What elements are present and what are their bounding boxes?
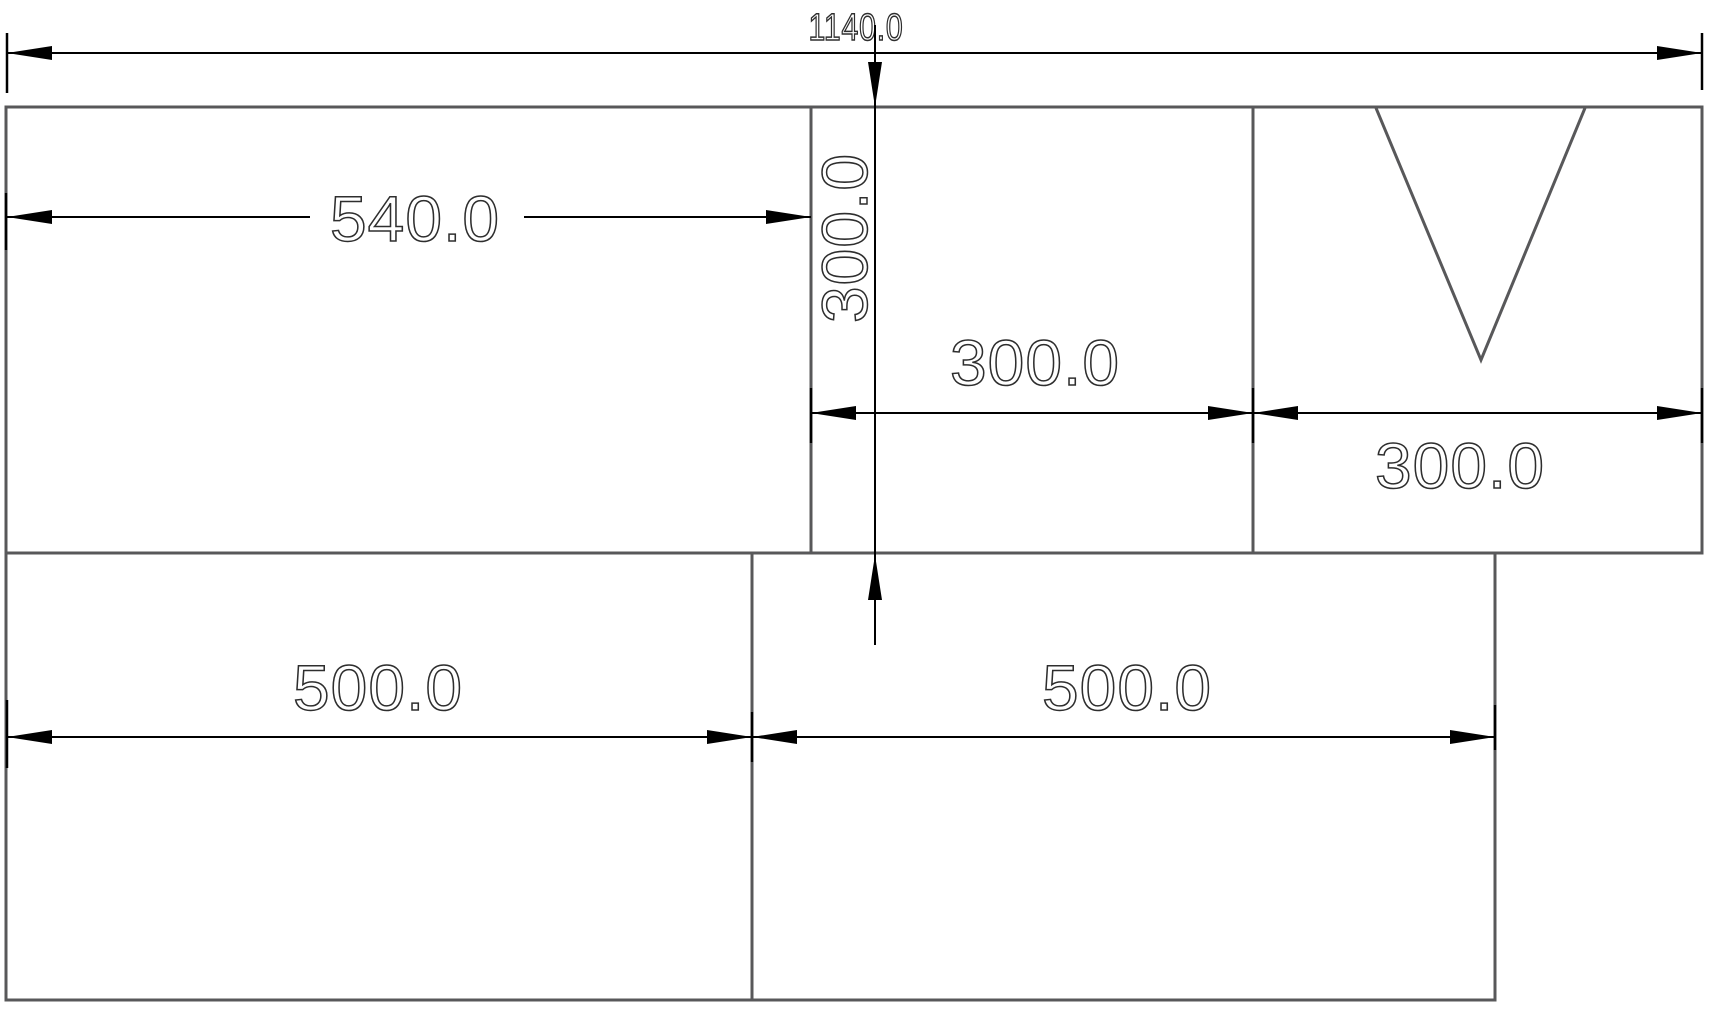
bottom-right-panel-outline [752,553,1495,1000]
arrow-right-icon [766,210,811,224]
arrow-right-icon [1657,46,1702,60]
arrow-right-icon [1657,406,1702,420]
dimension-top-middle-width: 300.0 [811,327,1253,443]
dimension-top-left-width: 540.0 [6,183,811,255]
dimension-bottom-right-width: 500.0 [752,652,1495,750]
arrow-left-icon [752,730,797,744]
arrow-right-icon [1208,406,1253,420]
bottom-left-panel-outline [6,553,752,1000]
arrow-left-icon [7,46,52,60]
arrow-left-icon [811,406,856,420]
v-notch-shape [1376,108,1585,360]
bottom-left-width-label: 500.0 [293,652,463,724]
overall-width-label: 1140.0 [809,7,904,49]
arrow-left-icon [7,730,52,744]
top-height-label: 300.0 [809,153,881,323]
arrow-down-icon [868,62,882,107]
dimension-bottom-left-width: 500.0 [7,652,752,768]
arrow-right-icon [1450,730,1495,744]
dimension-top-right-width: 300.0 [1253,388,1702,502]
dimension-overall-width: 1140.0 [7,7,1702,93]
arrow-right-icon [707,730,752,744]
top-right-width-label: 300.0 [1375,430,1545,502]
bottom-right-width-label: 500.0 [1042,652,1212,724]
arrow-left-icon [7,210,52,224]
cad-drawing-canvas: 1140.0 540.0 300.0 300.0 [0,0,1709,1015]
top-left-width-label: 540.0 [330,183,500,255]
technical-drawing: 1140.0 540.0 300.0 300.0 [0,0,1709,1015]
arrow-left-icon [1253,406,1298,420]
arrow-up-icon [868,555,882,600]
top-middle-width-label: 300.0 [950,327,1120,399]
